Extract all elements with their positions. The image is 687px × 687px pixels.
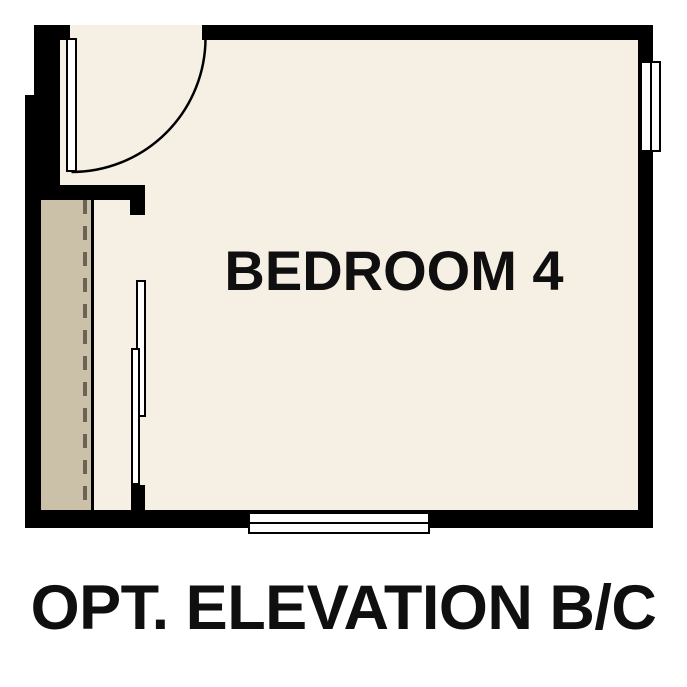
window-bottom-divider <box>250 522 428 524</box>
window-right-divider <box>650 63 652 150</box>
closet-rod-dashed-line <box>83 200 87 510</box>
door-leaf <box>66 38 77 172</box>
plan-caption: OPT. ELEVATION B/C <box>0 577 687 640</box>
wall-left-lower <box>25 95 41 528</box>
wall-interior-horizontal <box>25 185 145 200</box>
window-bottom <box>248 512 430 534</box>
wall-interior-stub <box>130 200 145 215</box>
window-right <box>640 61 661 152</box>
floor-plan: BEDROOM 4 OPT. ELEVATION B/C <box>0 0 687 687</box>
door-opening-floor <box>68 25 202 40</box>
wall-top-right <box>202 25 653 40</box>
room-label: BEDROOM 4 <box>94 243 687 299</box>
closet-slider-panel-left <box>131 348 140 485</box>
closet-wall-stub <box>131 485 145 510</box>
